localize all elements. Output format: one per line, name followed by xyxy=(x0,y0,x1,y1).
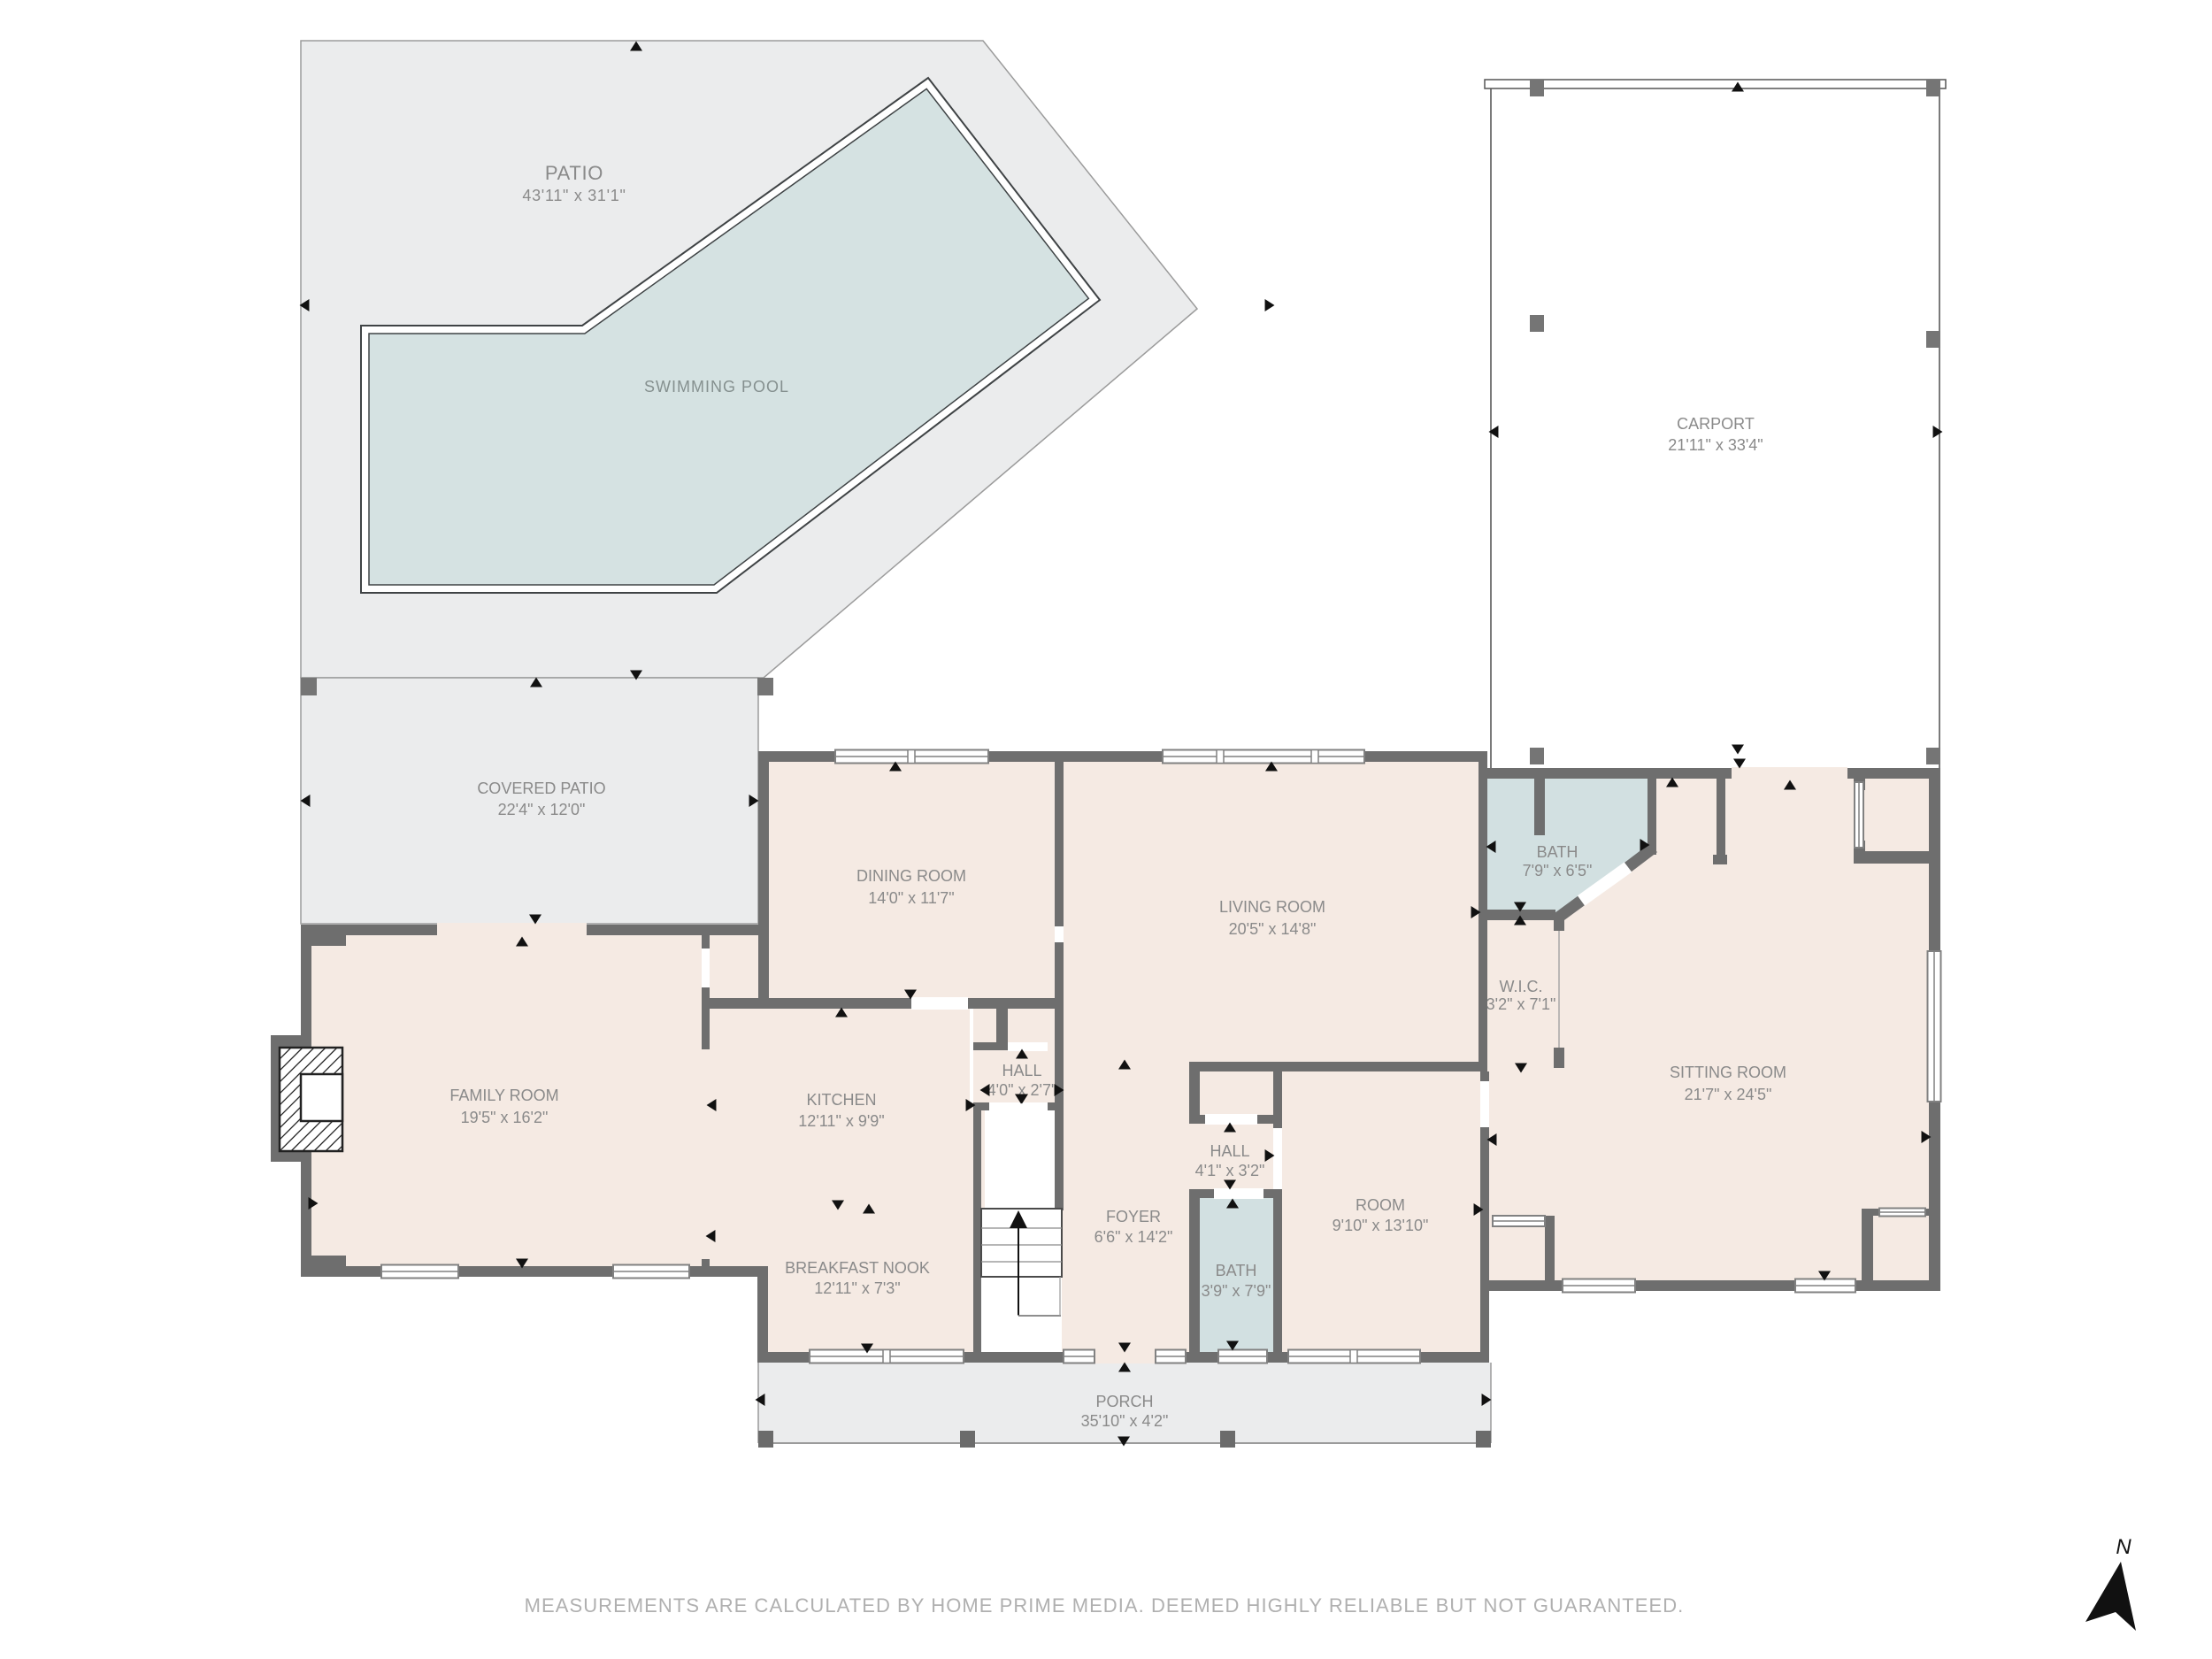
svg-text:W.I.C.: W.I.C. xyxy=(1500,978,1543,995)
svg-text:COVERED PATIO: COVERED PATIO xyxy=(477,780,605,797)
svg-text:LIVING ROOM: LIVING ROOM xyxy=(1219,898,1325,916)
svg-text:3'9" x 7'9": 3'9" x 7'9" xyxy=(1202,1282,1271,1300)
svg-text:12'11" x 7'3": 12'11" x 7'3" xyxy=(814,1279,900,1297)
svg-text:20'5" x 14'8": 20'5" x 14'8" xyxy=(1229,920,1317,938)
svg-text:CARPORT: CARPORT xyxy=(1677,415,1755,433)
svg-text:PORCH: PORCH xyxy=(1095,1393,1153,1410)
svg-text:9'10" x 13'10": 9'10" x 13'10" xyxy=(1333,1217,1429,1234)
svg-text:KITCHEN: KITCHEN xyxy=(806,1091,876,1109)
svg-text:PATIO: PATIO xyxy=(545,162,603,184)
svg-text:22'4" x 12'0": 22'4" x 12'0" xyxy=(498,801,586,818)
svg-text:HALL: HALL xyxy=(1002,1062,1041,1079)
svg-text:DINING ROOM: DINING ROOM xyxy=(856,867,966,885)
svg-text:7'9" x 6'5": 7'9" x 6'5" xyxy=(1523,862,1593,879)
svg-text:14'0" x 11'7": 14'0" x 11'7" xyxy=(868,889,954,907)
svg-text:12'11" x 9'9": 12'11" x 9'9" xyxy=(798,1112,884,1130)
svg-text:MEASUREMENTS ARE CALCULATED BY: MEASUREMENTS ARE CALCULATED BY HOME PRIM… xyxy=(525,1594,1685,1617)
svg-text:21'11" x 33'4": 21'11" x 33'4" xyxy=(1668,436,1763,454)
svg-text:43'11" x 31'1": 43'11" x 31'1" xyxy=(522,187,626,204)
svg-text:21'7" x 24'5": 21'7" x 24'5" xyxy=(1685,1086,1772,1103)
svg-text:HALL: HALL xyxy=(1210,1142,1249,1160)
svg-text:FAMILY ROOM: FAMILY ROOM xyxy=(449,1087,558,1104)
svg-text:35'10" x 4'2": 35'10" x 4'2" xyxy=(1081,1412,1169,1430)
svg-text:3'2" x 7'1": 3'2" x 7'1" xyxy=(1486,995,1556,1013)
svg-text:6'6" x 14'2": 6'6" x 14'2" xyxy=(1094,1228,1173,1246)
svg-text:4'1" x 3'2": 4'1" x 3'2" xyxy=(1195,1162,1265,1179)
svg-text:BATH: BATH xyxy=(1537,843,1578,861)
svg-text:SWIMMING POOL: SWIMMING POOL xyxy=(644,378,789,396)
svg-text:SITTING ROOM: SITTING ROOM xyxy=(1670,1064,1786,1081)
svg-text:FOYER: FOYER xyxy=(1106,1208,1161,1225)
svg-text:ROOM: ROOM xyxy=(1356,1196,1405,1214)
svg-text:BREAKFAST NOOK: BREAKFAST NOOK xyxy=(785,1259,930,1277)
svg-text:BATH: BATH xyxy=(1216,1262,1257,1279)
svg-text:19'5" x 16'2": 19'5" x 16'2" xyxy=(461,1109,549,1126)
svg-text:N: N xyxy=(2116,1535,2131,1559)
